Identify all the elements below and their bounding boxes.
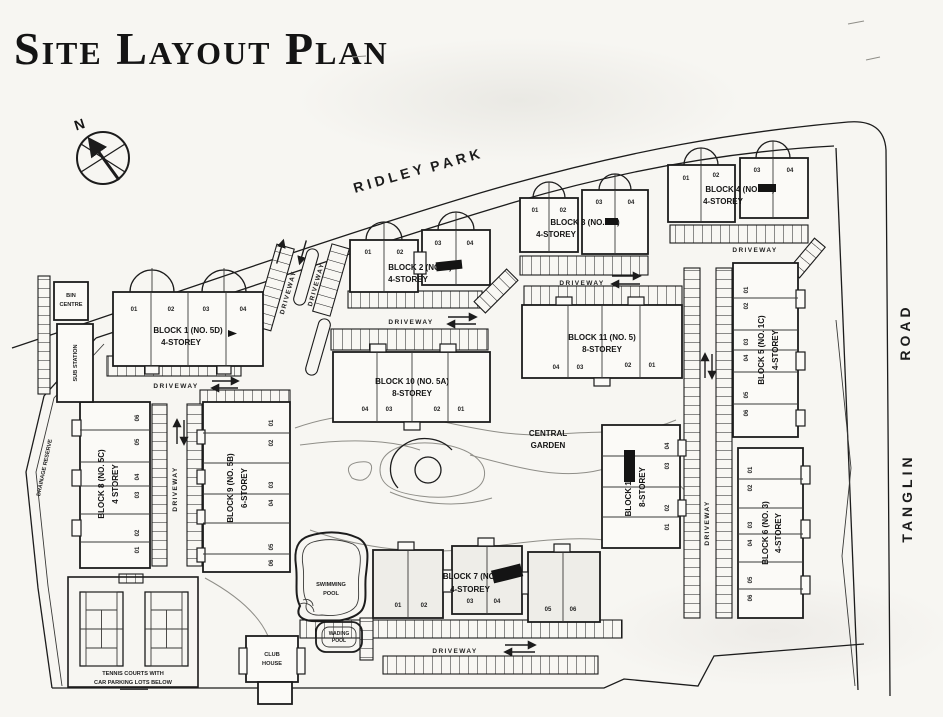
block-storey: 6-STOREY [240,467,249,508]
unit-number: 03 [467,599,474,605]
unit-number: 02 [665,504,671,511]
unit-number: 02 [135,529,141,536]
unit-number: 04 [553,365,560,371]
unit-number: 03 [754,168,761,174]
block-storey: 4-STOREY [161,338,202,347]
unit-number: 01 [365,250,372,256]
wading-pool-label: POOL [332,638,346,644]
parking-strip [331,329,488,350]
unit-number: 04 [240,307,247,313]
parking-strip [187,404,202,566]
unit-number: 04 [748,539,754,546]
unit-number: 01 [532,208,539,214]
unit-number: 04 [467,241,474,247]
block-storey: 8-STOREY [638,466,647,507]
unit-number: 03 [386,407,393,413]
block-name: BLOCK 7 (NO. [443,572,497,581]
unit-number: 03 [435,241,442,247]
unit-number: 01 [269,419,275,426]
wading-pool-label: WADING [329,631,350,637]
driveway-label: DRIVEWAY [172,466,179,511]
block-name: BLOCK 6 (NO. 3) [761,501,770,565]
drainage-reserve-label: DRAINAGE RESERVE [36,439,54,497]
block-storey: 8-STOREY [582,345,623,354]
unit-number: 03 [135,491,141,498]
unit-number: 03 [748,521,754,528]
club-house-label: HOUSE [262,661,282,667]
driveway-label: DRIVEWAY [559,280,604,287]
club-house-label: CLUB [264,652,280,658]
unit-number: 04 [269,499,275,506]
unit-number: 02 [269,439,275,446]
block-11: 04 03 02 01 BLOCK 11 (NO. 5) 8-STOREY [522,297,682,386]
parking-strip [524,286,682,305]
unit-number: 06 [570,607,577,613]
page-title: Site Layout Plan [14,23,389,74]
parking-strip [38,276,50,394]
unit-number: 01 [458,407,465,413]
unit-number: 01 [395,603,402,609]
block-4: 01 02 03 04 BLOCK 4 (NO. 1B) 4-STOREY [668,141,808,222]
unit-number: 05 [135,438,141,445]
unit-number: 06 [748,594,754,601]
unit-number: 03 [577,365,584,371]
unit-number: 01 [665,523,671,530]
ink-smudge [605,218,618,225]
parking-strip [670,225,808,243]
unit-number: 04 [494,599,501,605]
tennis-courts: TENNIS COURTS WITH CAR PARKING LOTS BELO… [68,577,198,689]
unit-number: 05 [748,576,754,583]
scan-noise-marks [352,21,880,60]
unit-number: 03 [269,481,275,488]
driveway-label: DRIVEWAY [704,500,711,545]
block-8: 06 05 04 03 02 01 BLOCK 8 (NO. 5C) 4 STO… [72,402,150,568]
block-storey: 4-STOREY [771,329,780,370]
site-layout-plan-page: Site Layout Plan N RIDLEY PARK ROAD TANG… [0,0,943,717]
unit-number: 01 [683,176,690,182]
block-12: 04 03 02 01 BLOCK 12 (NO. 8-STOREY [602,425,686,548]
unit-number: 06 [744,409,750,416]
bin-centre: BIN CENTRE [54,282,88,320]
sub-station-label: SUB STATION [73,344,79,381]
block-1: 01 02 03 04 BLOCK 1 (NO. 5D) 4-STOREY [113,268,263,374]
unit-number: 04 [135,473,141,480]
north-compass-icon: N [72,115,129,184]
central-garden-label-2: GARDEN [531,441,566,450]
unit-number: 04 [362,407,369,413]
block-6: 01 02 03 04 05 06 BLOCK 6 (NO. 3) 4-STOR… [738,448,810,618]
unit-number: 04 [628,200,635,206]
unit-number: 02 [421,603,428,609]
bin-centre-label: BIN [66,293,76,299]
unit-number: 01 [649,363,656,369]
unit-number: 06 [135,414,141,421]
unit-number: 02 [713,173,720,179]
unit-number: 05 [269,543,275,550]
swimming-pool-label: POOL [323,591,339,597]
tennis-courts-label: CAR PARKING LOTS BELOW [94,680,173,686]
unit-number: 02 [560,208,567,214]
block-2: 01 02 03 04 BLOCK 2 (NO. 1) 4-STOREY [350,212,490,292]
block-10: 04 03 02 01 BLOCK 10 (NO. 5A) 8-STOREY [333,344,490,430]
ink-smudge [624,450,635,482]
parking-strip [716,268,732,618]
unit-number: 03 [665,462,671,469]
parking-strip [348,291,482,308]
block-7: 01 02 03 04 05 06 BLOCK 7 (NO. 4-STOREY [373,538,600,622]
unit-number: 03 [203,307,210,313]
block-storey: 8-STOREY [392,389,433,398]
unit-number: 02 [748,484,754,491]
unit-number: 04 [787,168,794,174]
block-9: 01 02 03 04 05 06 BLOCK 9 (NO. 5B) 6-STO… [197,402,290,572]
block-storey: 4 STOREY [111,464,120,504]
north-label: N [72,115,87,133]
central-garden-label-1: CENTRAL [529,429,567,438]
ridley-park-label-1: RIDLEY [351,160,428,196]
unit-number: 01 [744,286,750,293]
unit-number: 02 [397,250,404,256]
driveway-label: DRIVEWAY [432,648,477,655]
driveway-label: DRIVEWAY [732,247,777,254]
swimming-pool-label: SWIMMING [316,582,346,588]
parking-strip [152,404,167,566]
driveway-label: DRIVEWAY [388,319,433,326]
unit-number: 03 [596,200,603,206]
tennis-court [145,592,188,666]
tanglin-road-label-2: ROAD [897,303,913,360]
unit-number: 01 [131,307,138,313]
block-name: BLOCK 9 (NO. 5B) [226,453,235,523]
unit-number: 01 [748,466,754,473]
unit-number: 04 [744,354,750,361]
swimming-pool: SWIMMING POOL [295,533,367,622]
driveway-label: DRIVEWAY [153,383,198,390]
ridley-park-label-2: PARK [428,144,485,174]
unit-number: 03 [744,338,750,345]
block-name: BLOCK 10 (NO. 5A) [375,377,449,386]
unit-number: 05 [744,391,750,398]
block-name: BLOCK 1 (NO. 5D) [153,326,223,335]
unit-number: 05 [545,607,552,613]
block-name: BLOCK 8 (NO. 5C) [97,449,106,519]
unit-number: 02 [434,407,441,413]
sub-station: SUB STATION [57,324,93,402]
parking-strip [119,574,143,583]
parking-strip [383,656,598,674]
block-3: 01 02 03 04 BLOCK 3 (NO. 1A) 4-STOREY [520,174,648,254]
unit-number: 06 [269,559,275,566]
tennis-court [80,592,123,666]
block-storey: 4-STOREY [703,197,744,206]
unit-number: 04 [665,442,671,449]
tennis-courts-label: TENNIS COURTS WITH [102,671,164,677]
ink-smudge [758,184,776,192]
block-storey: 4-STOREY [388,275,429,284]
parking-strip [520,256,648,275]
unit-number: 02 [168,307,175,313]
block-name: BLOCK 11 (NO. 5) [568,333,636,342]
unit-number: 01 [135,546,141,553]
block-storey: 4-STOREY [450,585,491,594]
unit-number: 02 [744,302,750,309]
driveway-median-island [304,317,332,376]
block-5: 01 02 03 04 05 06 BLOCK 5 (NO. 1C) 4-STO… [733,263,805,437]
block-name: BLOCK 5 (NO. 1C) [757,315,766,385]
tanglin-road-label-1: TANGLIN [899,453,915,542]
club-house: CLUB HOUSE [239,636,305,704]
bin-centre-label: CENTRE [60,302,83,308]
block-storey: 4-STOREY [774,512,783,553]
site-plan-drawing: Site Layout Plan N RIDLEY PARK ROAD TANG… [0,0,943,717]
block-storey: 4-STOREY [536,230,577,239]
unit-number: 02 [625,363,632,369]
